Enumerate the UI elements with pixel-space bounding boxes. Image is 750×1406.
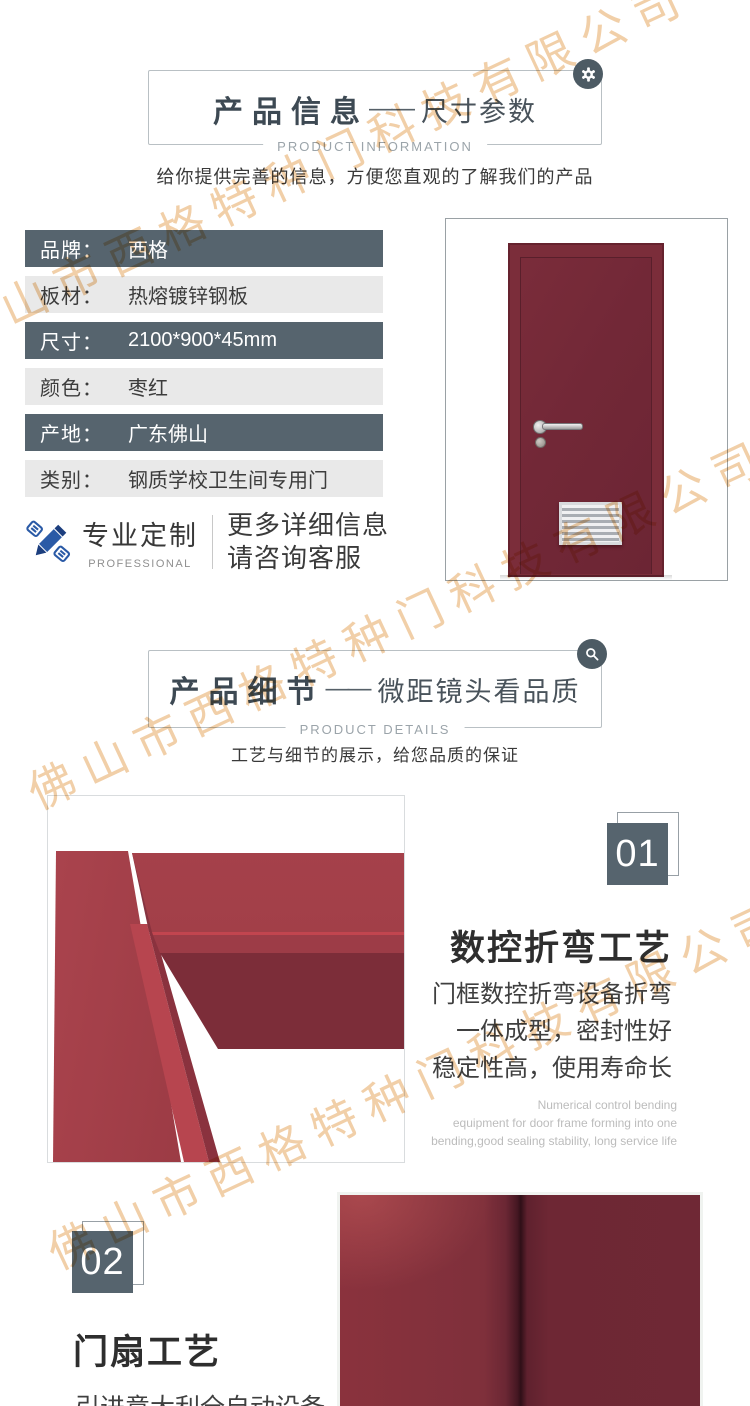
product-info-title-main: 产品信息 — [213, 87, 369, 131]
spec-label: 类别： — [40, 464, 128, 493]
badge-01: 01 — [607, 823, 668, 885]
badge-02: 02 — [72, 1231, 133, 1293]
product-details-header-box: 产品细节 —— 微距镜头看品质 PRODUCT DETAILS — [148, 650, 602, 728]
feature-01-heading: 数控折弯工艺 — [450, 920, 672, 971]
custom-service-note: 更多详细信息 请咨询客服 — [227, 509, 389, 575]
gear-icon — [573, 59, 603, 89]
spec-value: 枣红 — [128, 372, 168, 401]
spec-row-color: 颜色： 枣红 — [25, 368, 383, 405]
custom-service-title-group: 专业定制 PROFESSIONAL — [82, 514, 198, 570]
feature-01-body: 门框数控折弯设备折弯 一体成型，密封性好 稳定性高，使用寿命长 — [432, 976, 672, 1087]
spec-value: 2100*900*45mm — [128, 329, 277, 352]
feature-02-heading: 门扇工艺 — [73, 1324, 221, 1375]
spec-row-origin: 产地： 广东佛山 — [25, 414, 383, 451]
spec-label: 产地： — [40, 418, 128, 447]
product-details-title-en: PRODUCT DETAILS — [286, 722, 465, 737]
spec-label: 品牌： — [40, 234, 128, 263]
product-details-title-main: 产品细节 — [170, 667, 326, 711]
spec-label: 颜色： — [40, 372, 128, 401]
vertical-divider — [212, 515, 213, 569]
spec-value: 西格 — [128, 234, 168, 263]
magnifier-icon — [577, 639, 607, 669]
door-frame — [508, 243, 664, 577]
product-info-header-box: 产品信息 —— 尺寸参数 PRODUCT INFORMATION — [148, 70, 602, 145]
custom-service-title: 专业定制 — [82, 514, 198, 553]
spec-value: 热熔镀锌钢板 — [128, 280, 248, 309]
product-details-title-sub: 微距镜头看品质 — [378, 670, 581, 709]
door-leaf — [520, 257, 652, 574]
product-details-tagline: 工艺与细节的展示，给您品质的保证 — [0, 741, 750, 766]
product-details-title: 产品细节 —— 微距镜头看品质 — [149, 651, 601, 711]
spec-row-size: 尺寸： 2100*900*45mm — [25, 322, 383, 359]
feature-01-body-line2: 一体成型，密封性好 — [432, 1013, 672, 1050]
product-info-tagline: 给你提供完善的信息，方便您直观的了解我们的产品 — [0, 163, 750, 189]
door-leaf-detail-image — [337, 1192, 703, 1406]
product-info-title-en: PRODUCT INFORMATION — [263, 139, 487, 154]
spec-label: 板材： — [40, 280, 128, 309]
door-product-image — [445, 218, 728, 581]
spec-row-category: 类别： 钢质学校卫生间专用门 — [25, 460, 383, 497]
spec-row-material: 板材： 热熔镀锌钢板 — [25, 276, 383, 313]
custom-service-note-line1: 更多详细信息 — [227, 509, 389, 542]
spec-label: 尺寸： — [40, 326, 128, 355]
product-info-title-sub: 尺寸参数 — [421, 90, 537, 129]
feature-01-en-line3: bending,good sealing stability, long ser… — [431, 1132, 677, 1150]
door-vent-grille — [559, 502, 622, 545]
title-dash: —— — [369, 95, 413, 123]
feature-01-en-line2: equipment for door frame forming into on… — [431, 1114, 677, 1132]
feature-01-body-line1: 门框数控折弯设备折弯 — [432, 976, 672, 1013]
door-lock-cylinder — [535, 437, 546, 448]
feature-01-body-line3: 稳定性高，使用寿命长 — [432, 1050, 672, 1087]
custom-service-note-line2: 请咨询客服 — [227, 542, 389, 575]
spec-row-brand: 品牌： 西格 — [25, 230, 383, 267]
spec-table: 品牌： 西格 板材： 热熔镀锌钢板 尺寸： 2100*900*45mm 颜色： … — [25, 230, 383, 506]
pencil-icon — [24, 517, 74, 567]
title-dash: —— — [326, 675, 370, 703]
feature-02-body: 引进意大利全自动设备 — [75, 1390, 325, 1406]
frame-corner-detail-image — [47, 795, 405, 1163]
product-detail-page: 产品信息 —— 尺寸参数 PRODUCT INFORMATION 给你提供完善的… — [0, 0, 750, 1406]
custom-service-block: 专业定制 PROFESSIONAL 更多详细信息 请咨询客服 — [24, 509, 389, 575]
custom-service-title-en: PROFESSIONAL — [82, 558, 198, 570]
feature-01-en-line1: Numerical control bending — [431, 1096, 677, 1114]
spec-value: 钢质学校卫生间专用门 — [128, 464, 328, 493]
product-info-title: 产品信息 —— 尺寸参数 — [149, 71, 601, 131]
feature-01-body-en: Numerical control bending equipment for … — [431, 1096, 677, 1150]
door-handle-lever — [542, 423, 583, 430]
spec-value: 广东佛山 — [128, 418, 208, 447]
